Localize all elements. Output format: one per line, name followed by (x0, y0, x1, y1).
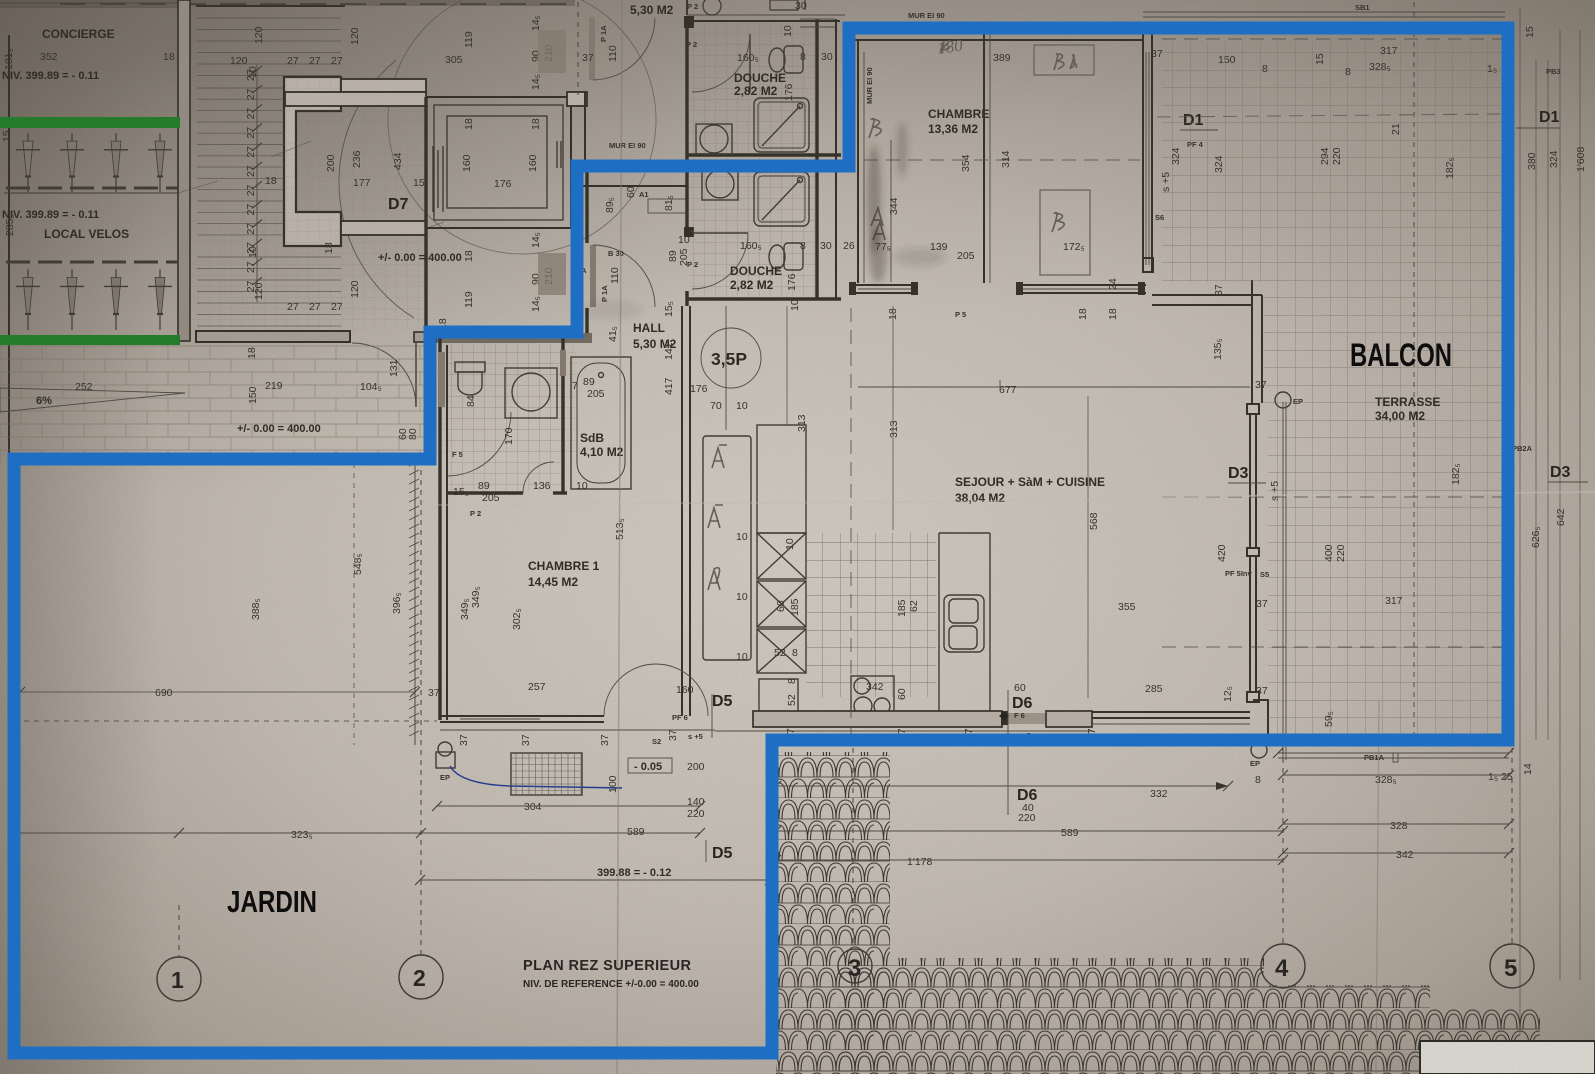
svg-text:PLAN REZ SUPERIEUR: PLAN REZ SUPERIEUR (523, 958, 691, 974)
svg-text:NIV. DE REFERENCE +/-0.00 = 40: NIV. DE REFERENCE +/-0.00 = 400.00 (523, 979, 699, 990)
svg-text:JARDIN: JARDIN (227, 884, 317, 919)
svg-text:BALCON: BALCON (1350, 337, 1452, 373)
